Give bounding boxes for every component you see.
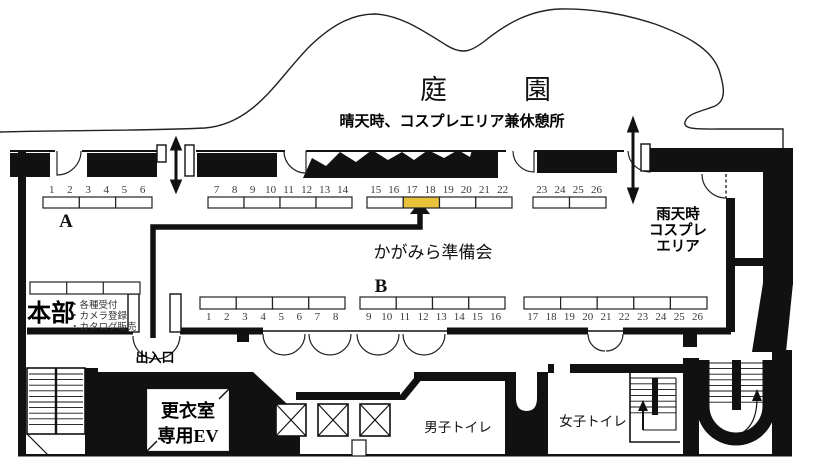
hq-service-3: ・カタログ販売 [70, 321, 137, 333]
table-cell-a17-18 [403, 197, 439, 208]
up-down-arrow-icon [171, 137, 182, 193]
table-cell-b13-14 [433, 297, 469, 309]
table-number-a4: 4 [103, 184, 109, 196]
table-cell-b21-22 [597, 297, 634, 309]
table-number-b5: 5 [278, 311, 284, 323]
table-number-b15: 15 [472, 311, 484, 323]
wall-block [10, 153, 50, 177]
table-cell-b7-8 [309, 297, 345, 309]
table-cell-b25-26 [670, 297, 707, 309]
table-cell-b1-2 [200, 297, 236, 309]
ev-label-line-2: 専用EV [157, 425, 218, 446]
small-door [352, 440, 366, 456]
table-cell-b5-6 [273, 297, 309, 309]
table-number-a22: 22 [497, 184, 508, 196]
table-number-b3: 3 [242, 311, 248, 323]
floor-plan: 1234567891011121314151617181920212223242… [0, 0, 813, 472]
ev-label-line-1: 更衣室 [161, 400, 215, 421]
table-cell-b3-4 [236, 297, 272, 309]
row-b-tables: 1234567891011121314151617181920212223242… [200, 297, 707, 323]
staircase-left [27, 368, 98, 455]
table-number-a12: 12 [301, 184, 312, 196]
hq-tables [30, 282, 140, 294]
rain-area-line-3: エリア [656, 239, 700, 255]
row-a-label: A [59, 211, 73, 232]
door-jamb [185, 145, 194, 176]
organizer-label: かがみら準備会 [374, 243, 493, 262]
table-number-b17: 17 [527, 311, 539, 323]
garden-label: 庭園 [420, 75, 628, 105]
table-number-b23: 23 [637, 311, 649, 323]
table-number-a24: 24 [555, 184, 567, 196]
door-arc [263, 334, 305, 355]
table-number-a15: 15 [370, 184, 382, 196]
womens-room-door-gap [554, 363, 570, 374]
door-arc [702, 174, 726, 198]
table-number-b21: 21 [601, 311, 612, 323]
table-cell-a9-10 [244, 197, 280, 208]
door-jamb [641, 144, 650, 171]
table-number-b25: 25 [674, 311, 686, 323]
door-arc [57, 151, 81, 175]
partition-stub [735, 258, 765, 266]
table-number-b19: 19 [564, 311, 576, 323]
table-number-a17: 17 [406, 184, 418, 196]
table-cell-b11-12 [396, 297, 432, 309]
right-wall-upper [763, 172, 793, 285]
table-number-a3: 3 [85, 184, 91, 196]
staircase-right-small [630, 370, 680, 442]
table-cell-a15-16 [367, 197, 403, 208]
table-cell-a3-4 [79, 197, 115, 208]
table-number-a1: 1 [49, 184, 55, 196]
table-number-a26: 26 [591, 184, 603, 196]
table-number-a19: 19 [443, 184, 455, 196]
elevator-room-wall [296, 392, 400, 400]
table-cell-a13-14 [316, 197, 352, 208]
table-number-b6: 6 [297, 311, 303, 323]
table-number-b4: 4 [260, 311, 266, 323]
table-cell-b19-20 [561, 297, 598, 309]
hq-service-2: ・カメラ登録 [70, 310, 128, 322]
table-number-b7: 7 [315, 311, 321, 323]
table-cell-a21-22 [476, 197, 512, 208]
table-number-a6: 6 [140, 184, 146, 196]
floor-plan-svg: 1234567891011121314151617181920212223242… [0, 0, 813, 472]
table-number-b20: 20 [582, 311, 594, 323]
table-number-a14: 14 [337, 184, 349, 196]
sunny-area-note: 晴天時、コスプレエリア兼休憩所 [339, 112, 564, 130]
table-cell-b9-10 [360, 297, 396, 309]
table-number-b13: 13 [436, 311, 448, 323]
partition-wall [726, 198, 735, 332]
table-number-b22: 22 [619, 311, 630, 323]
door-arc [403, 334, 445, 355]
table-number-a8: 8 [232, 184, 238, 196]
table-cell-a7-8 [208, 197, 244, 208]
table-number-b24: 24 [655, 311, 667, 323]
row-b-label: B [375, 276, 388, 297]
elevator-shaft-icons [276, 404, 390, 436]
womens-toilet-label: 女子トイレ [559, 413, 627, 429]
table-number-a2: 2 [67, 184, 73, 196]
table-number-b18: 18 [546, 311, 558, 323]
table-number-b8: 8 [333, 311, 339, 323]
wall-block-top-right [650, 148, 793, 172]
rain-area-line-2: コスプレ [649, 222, 707, 239]
table-number-a11: 11 [283, 184, 294, 196]
table-cell-a1-2 [43, 197, 79, 208]
table-number-b26: 26 [692, 311, 704, 323]
entrance-jamb [170, 294, 181, 332]
table-number-a25: 25 [573, 184, 585, 196]
hq-label: 本部 [27, 299, 75, 327]
table-number-b11: 11 [400, 311, 411, 323]
entrance-label: 出入口 [135, 350, 174, 365]
table-cell-a25-26 [570, 197, 607, 208]
mens-toilet-label: 男子トイレ [424, 420, 492, 435]
table-cell-b15-16 [469, 297, 505, 309]
wall-stub [683, 334, 697, 347]
table-cell-a19-20 [440, 197, 476, 208]
wall-block [537, 150, 617, 173]
table-cell-b23-24 [634, 297, 671, 309]
row-a-tables: 1234567891011121314151617181920212223242… [43, 184, 606, 208]
wall-stub [237, 334, 249, 342]
table-number-b9: 9 [366, 311, 372, 323]
table-number-b2: 2 [224, 311, 230, 323]
table-cell-a11-12 [280, 197, 316, 208]
wall-block [197, 153, 277, 177]
table-number-a23: 23 [536, 184, 548, 196]
left-wall [18, 150, 26, 456]
mens-room-top-wall [414, 372, 510, 381]
table-number-b10: 10 [381, 311, 393, 323]
table-number-a10: 10 [265, 184, 277, 196]
table-number-a7: 7 [214, 184, 220, 196]
table-cell-a5-6 [116, 197, 152, 208]
table-number-a20: 20 [461, 184, 473, 196]
door-jamb [157, 145, 166, 162]
table-cell-b17-18 [524, 297, 561, 309]
wall-block [87, 153, 157, 177]
door-arc [357, 334, 399, 355]
door-arc [309, 334, 351, 355]
table-number-a16: 16 [388, 184, 400, 196]
table-number-a21: 21 [479, 184, 490, 196]
table-cell-a23-24 [533, 197, 570, 208]
table-number-b1: 1 [206, 311, 212, 323]
table-number-a9: 9 [250, 184, 256, 196]
stage-zigzag-block [303, 150, 498, 178]
table-number-a13: 13 [319, 184, 331, 196]
up-down-arrow-icon [628, 117, 639, 203]
double-door-arc [588, 334, 623, 351]
rain-area-line-1: 雨天時 [656, 206, 700, 223]
right-wall-kink [752, 283, 793, 352]
door-arc [284, 151, 306, 173]
staircase-right-large [703, 360, 769, 439]
table-number-a18: 18 [425, 184, 437, 196]
table-number-b14: 14 [454, 311, 466, 323]
elevator-room-wall-diag [396, 378, 423, 400]
hq-service-1: ・各種受付 [70, 299, 118, 311]
door-arc [513, 151, 534, 172]
toilet-divider-pillar [505, 372, 548, 455]
table-number-b16: 16 [490, 311, 502, 323]
table-number-b12: 12 [418, 311, 429, 323]
table-number-a5: 5 [122, 184, 128, 196]
